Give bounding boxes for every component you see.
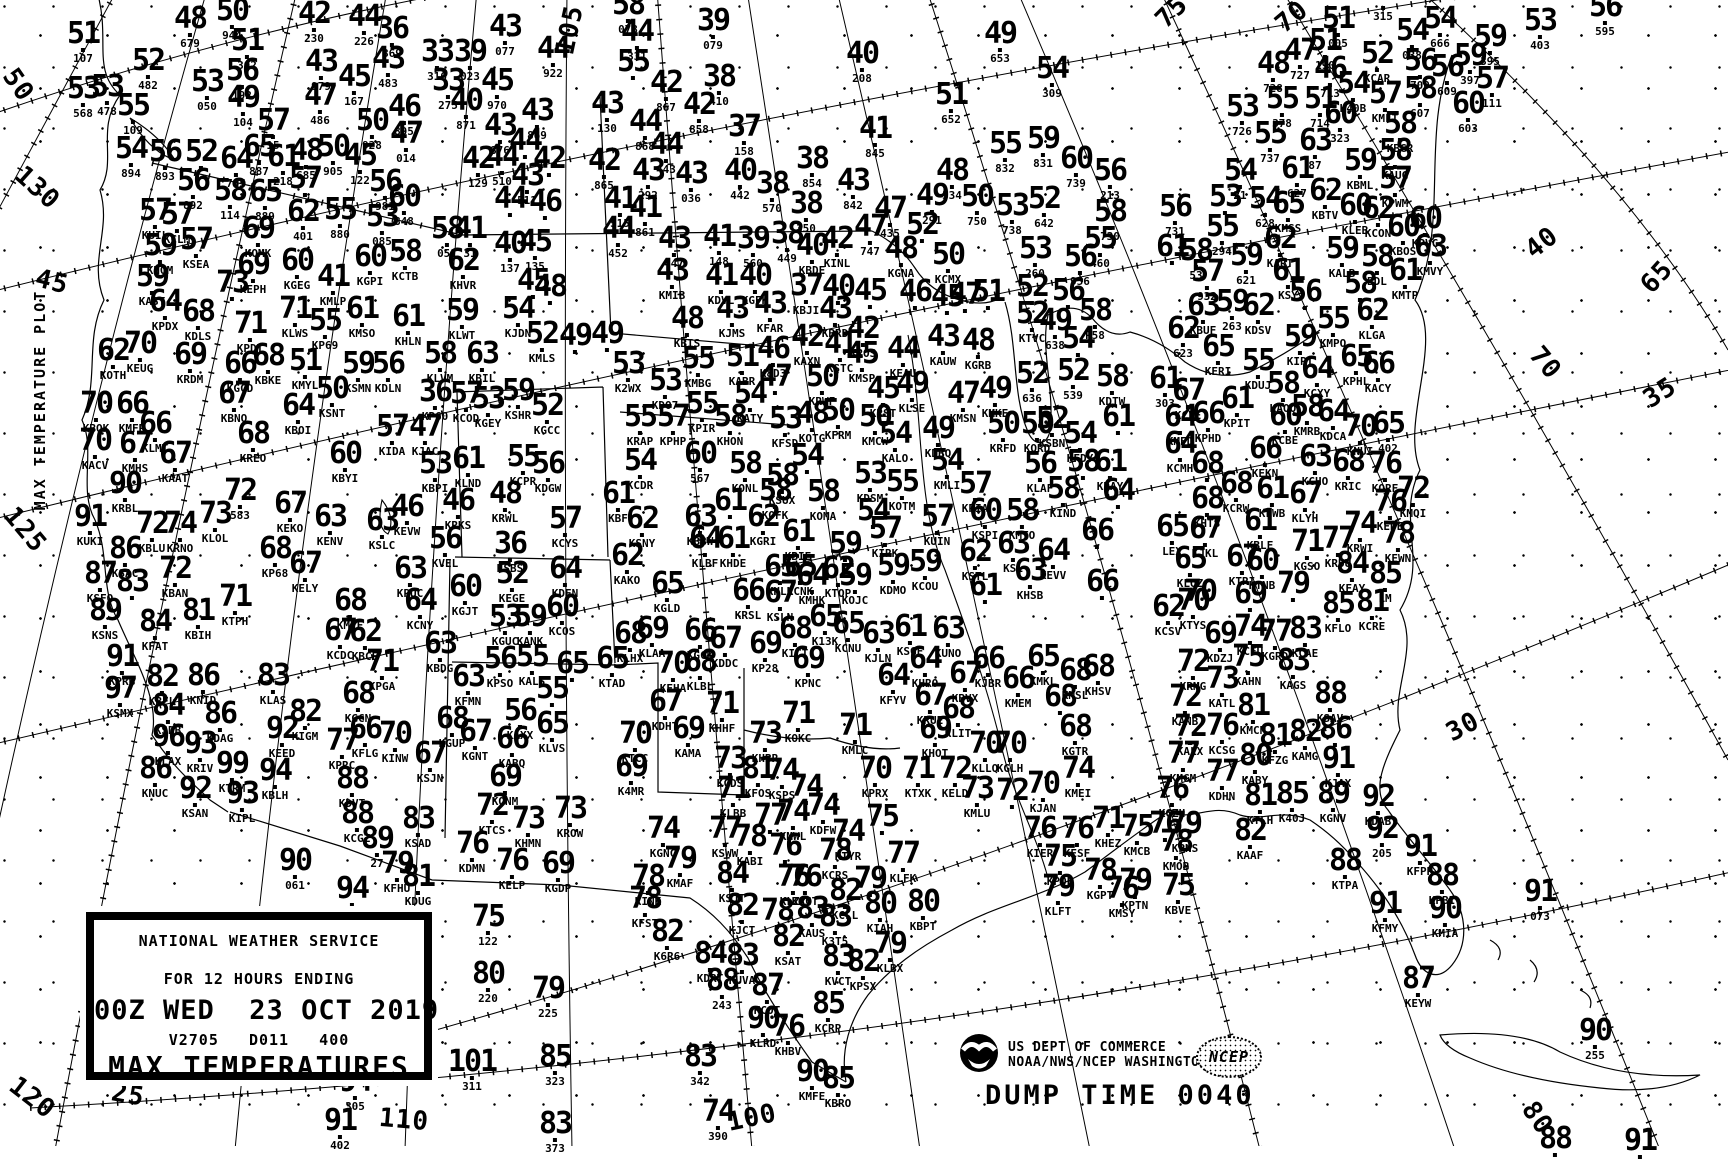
weather-map: 5110748679509445130252482535685347855109…	[0, 0, 1728, 1146]
graticule-label: 70	[1270, 0, 1315, 39]
graticule-label: 75	[1150, 0, 1195, 34]
dump-time-label: DUMP TIME 0040	[985, 1080, 1255, 1111]
side-label: MAX TEMPERATURE PLOT	[31, 290, 49, 511]
graticule-label: 110	[378, 1103, 430, 1137]
graticule-label: 35	[1638, 371, 1682, 414]
graticule-label: 65	[1635, 255, 1680, 300]
ncep-logo: NCEP	[1196, 1036, 1262, 1078]
credit-agency-line2: NOAA/NWS/NCEP WASHINGTON	[1008, 1055, 1208, 1070]
credits-block: US DEPT OF COMMERCE NOAA/NWS/NCEP WASHIN…	[958, 1032, 1208, 1074]
station-dot	[1638, 1155, 1642, 1159]
noaa-eagle-icon	[958, 1032, 1000, 1074]
graticule-label: 100	[724, 1098, 779, 1138]
graticule-label: 80	[1515, 1096, 1559, 1140]
ncep-logo-text: NCEP	[1209, 1048, 1249, 1066]
legend-box: NATIONAL WEATHER SERVICE FOR 12 HOURS EN…	[86, 912, 432, 1080]
station-dot	[1553, 1153, 1557, 1157]
credit-agency-line1: US DEPT OF COMMERCE	[1008, 1040, 1208, 1055]
legend-version-codes: V2705 D011 400	[94, 1031, 424, 1049]
legend-valid-time: 00Z WED 23 OCT 2019	[94, 995, 424, 1026]
graticule-label: 130	[8, 160, 65, 216]
graticule-label: 50	[0, 63, 40, 107]
graticule-label: 120	[3, 1071, 61, 1125]
legend-subtitle: FOR 12 HOURS ENDING	[94, 970, 424, 988]
legend-product-name: MAX TEMPERATURES	[94, 1050, 424, 1083]
graticule-label: 40	[1520, 221, 1565, 265]
graticule-label: 70	[1523, 341, 1567, 386]
graticule-label: 30	[1441, 706, 1484, 748]
graticule-label: 105	[550, 2, 590, 57]
legend-title: NATIONAL WEATHER SERVICE	[94, 932, 424, 950]
